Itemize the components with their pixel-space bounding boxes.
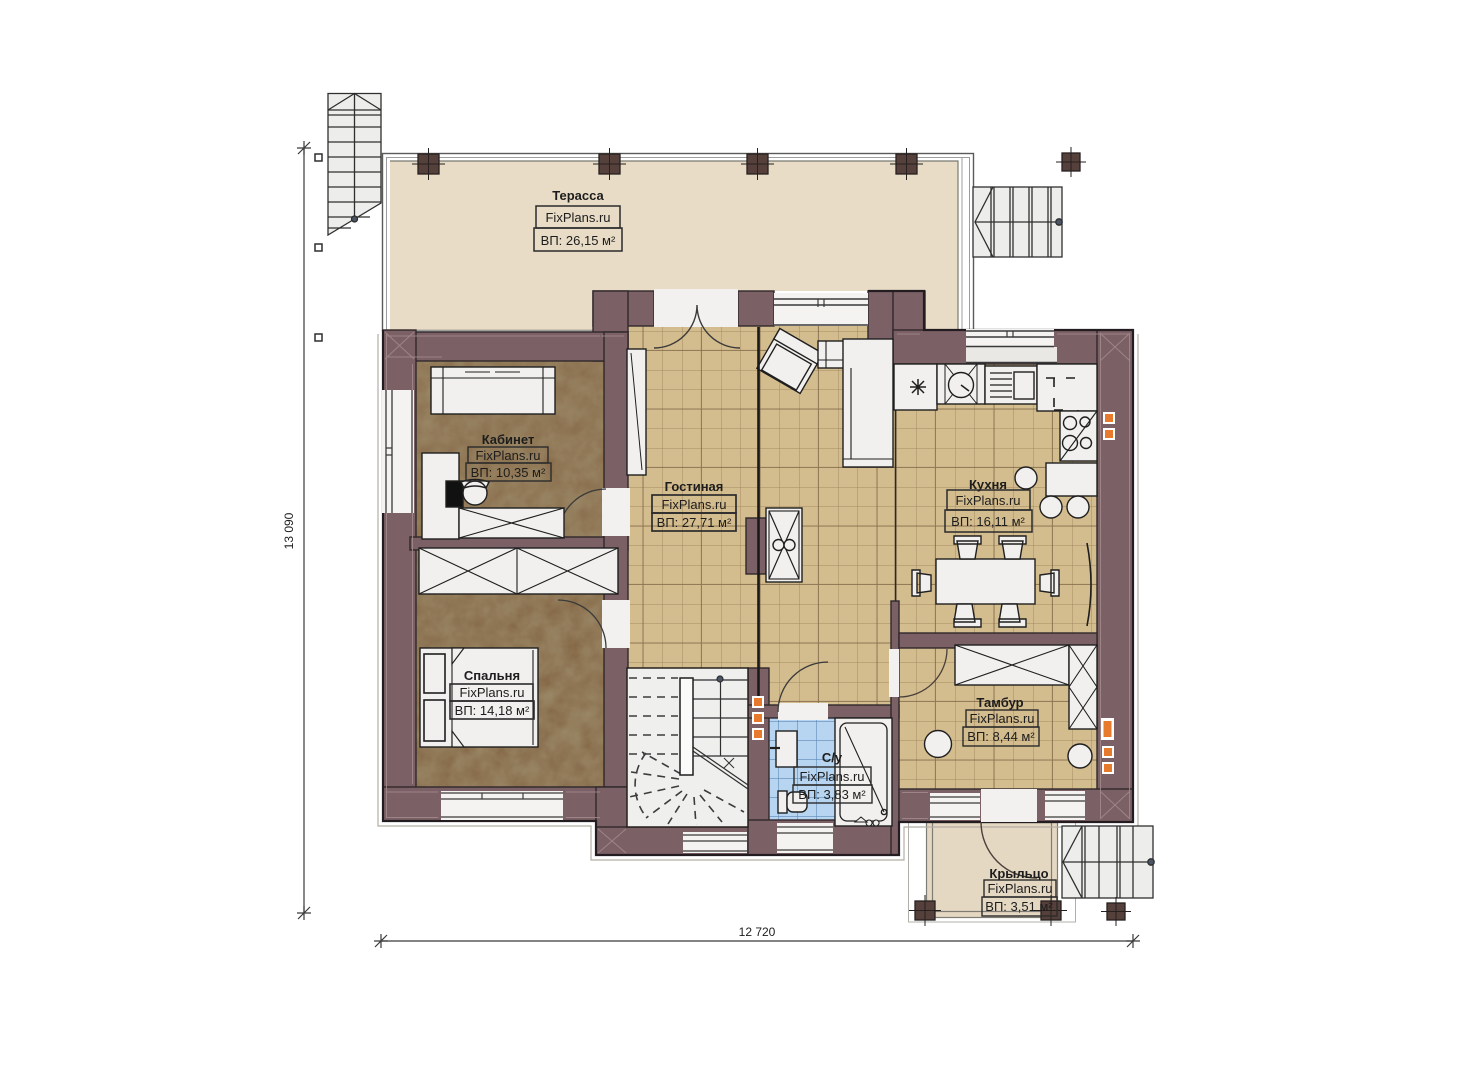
svg-text:FixPlans.ru: FixPlans.ru: [545, 210, 610, 225]
svg-text:FixPlans.ru: FixPlans.ru: [661, 497, 726, 512]
svg-text:12 720: 12 720: [739, 925, 776, 939]
svg-text:Крыльцо: Крыльцо: [989, 866, 1048, 881]
svg-text:ВП: 3,51 м²: ВП: 3,51 м²: [985, 899, 1053, 914]
svg-text:FixPlans.ru: FixPlans.ru: [459, 685, 524, 700]
svg-text:FixPlans.ru: FixPlans.ru: [969, 711, 1034, 726]
svg-text:Кабинет: Кабинет: [482, 432, 535, 447]
svg-text:13 090: 13 090: [282, 512, 296, 549]
svg-text:ВП: 16,11 м²: ВП: 16,11 м²: [951, 514, 1025, 529]
svg-text:FixPlans.ru: FixPlans.ru: [987, 881, 1052, 896]
svg-text:Гостиная: Гостиная: [665, 479, 724, 494]
svg-text:ВП: 14,18 м²: ВП: 14,18 м²: [455, 703, 530, 718]
svg-text:FixPlans.ru: FixPlans.ru: [799, 769, 864, 784]
svg-text:Спальня: Спальня: [464, 668, 520, 683]
svg-text:Терасса: Терасса: [552, 188, 604, 203]
svg-text:ВП: 8,44 м²: ВП: 8,44 м²: [967, 729, 1035, 744]
svg-text:ВП: 26,15 м²: ВП: 26,15 м²: [541, 233, 616, 248]
svg-text:FixPlans.ru: FixPlans.ru: [475, 448, 540, 463]
svg-text:С/у: С/у: [822, 750, 843, 765]
svg-text:ВП: 10,35 м²: ВП: 10,35 м²: [471, 465, 546, 480]
svg-text:ВП: 3,83 м²: ВП: 3,83 м²: [798, 787, 866, 802]
svg-text:ВП: 27,71 м²: ВП: 27,71 м²: [657, 515, 732, 530]
svg-text:FixPlans.ru: FixPlans.ru: [955, 493, 1020, 508]
svg-text:Тамбур: Тамбур: [976, 695, 1023, 710]
